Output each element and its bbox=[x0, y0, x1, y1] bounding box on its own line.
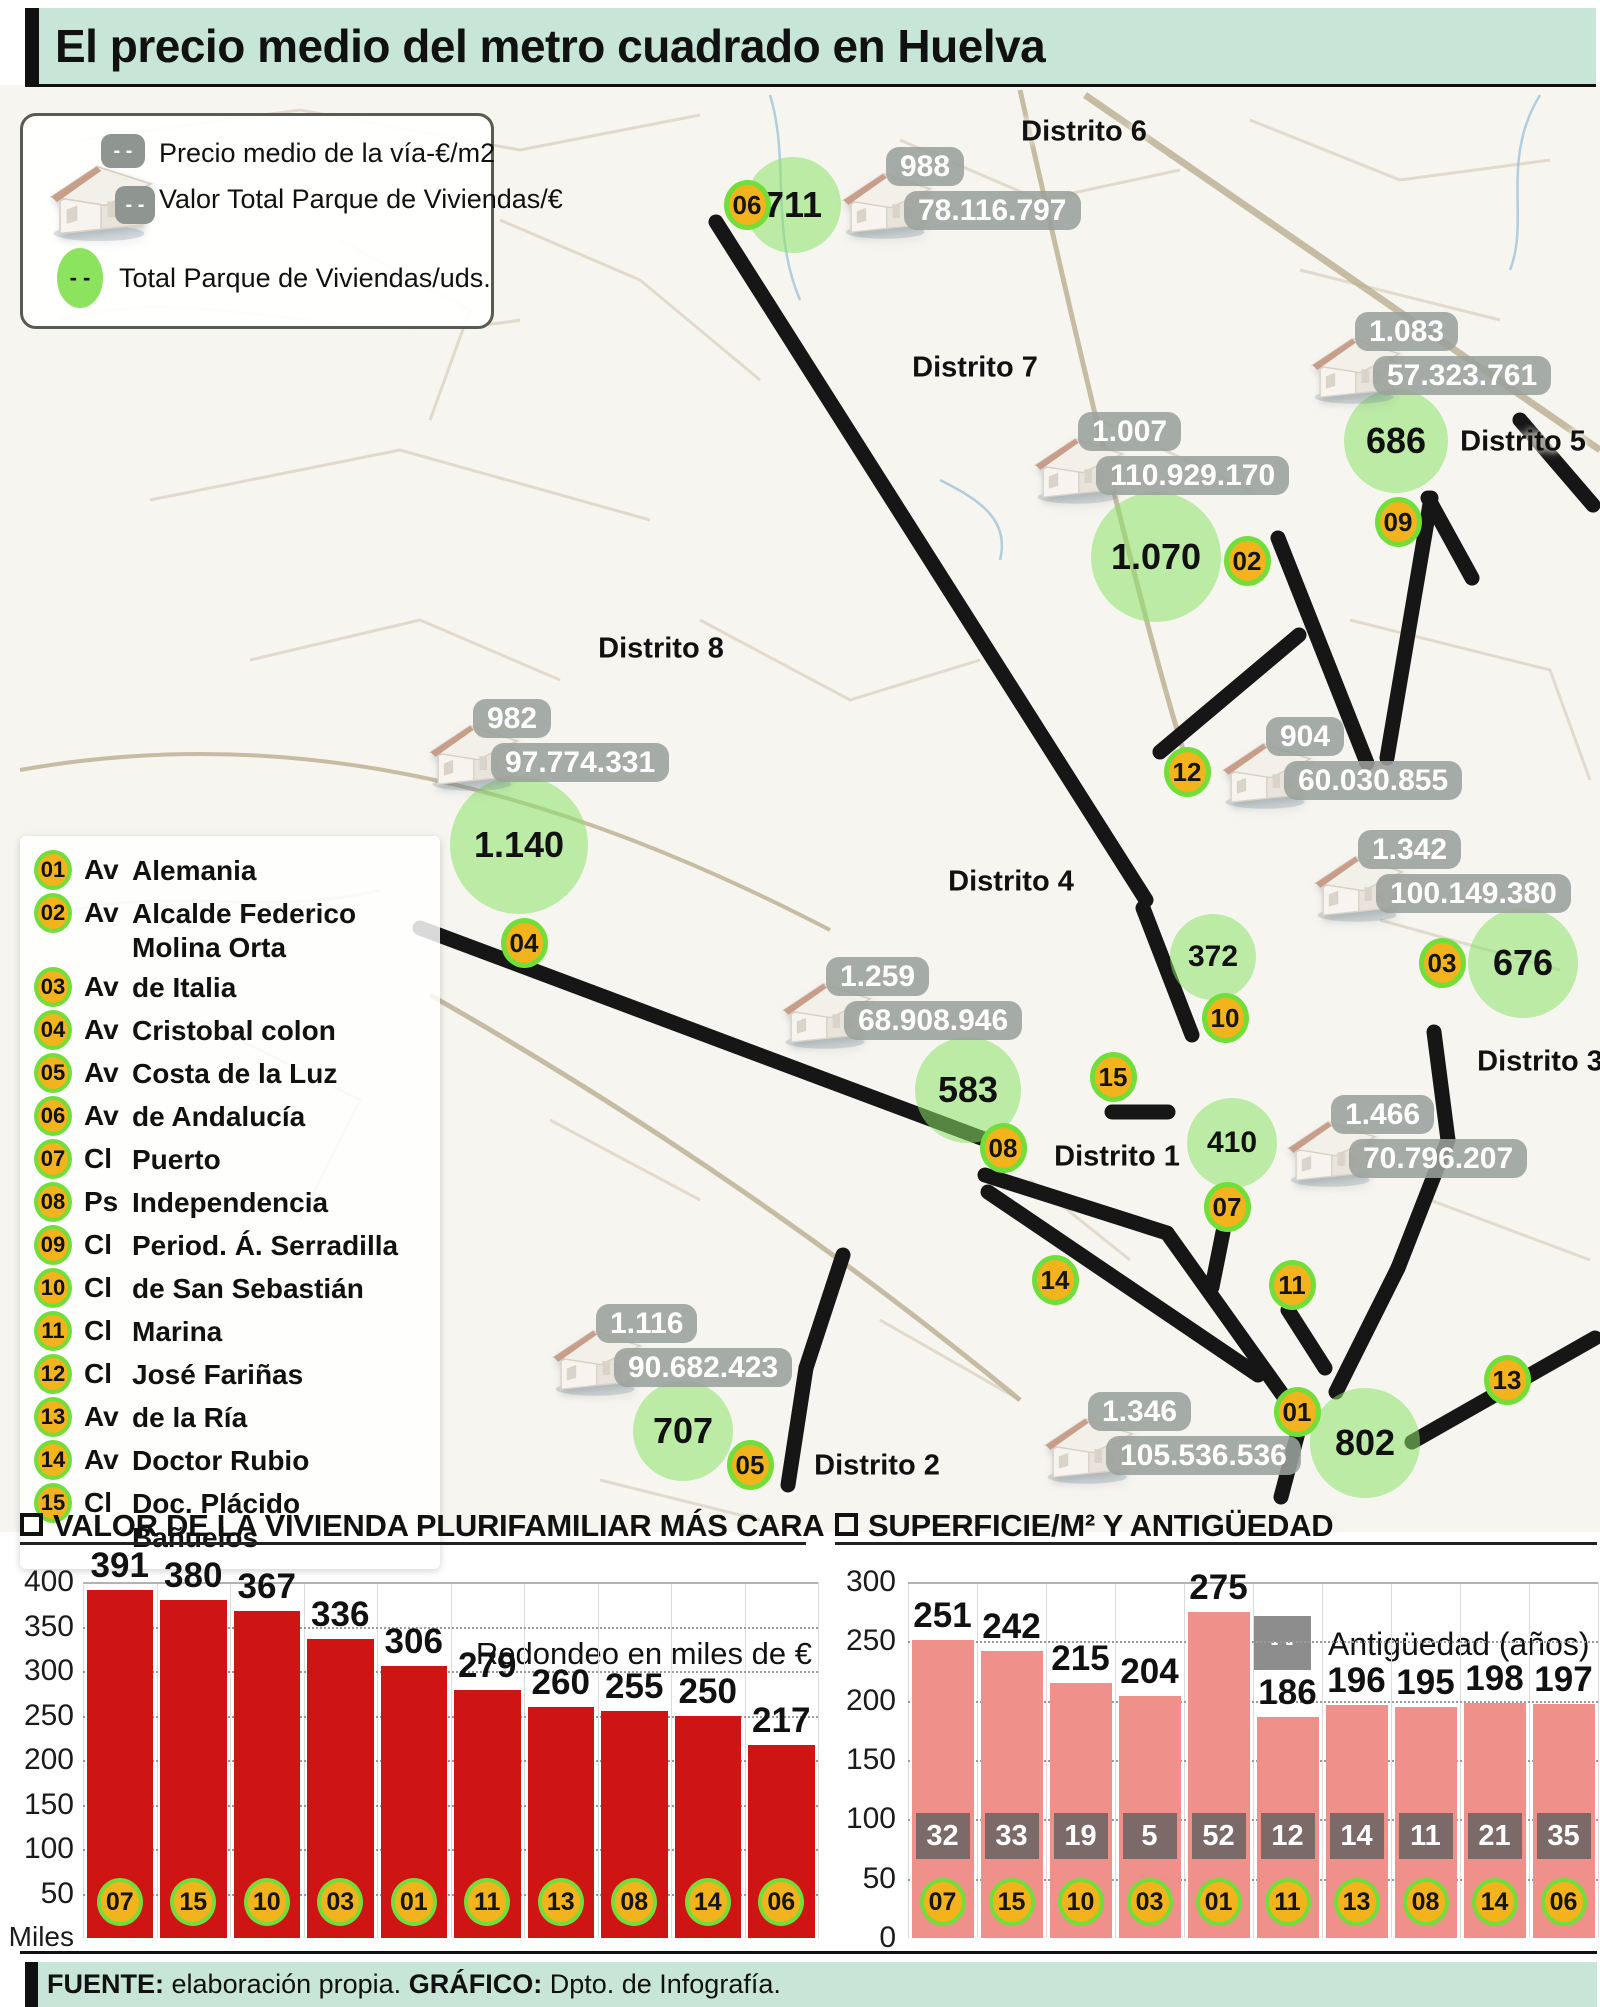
bar-value-label: 391 bbox=[83, 1546, 157, 1586]
age-value-badge: 35 bbox=[1537, 1813, 1591, 1859]
infographic-page: 7116861.0701.14037267658341070780298878.… bbox=[0, 0, 1600, 2007]
age-value-badge: 33 bbox=[985, 1813, 1039, 1859]
x-category-badge: 03 bbox=[1127, 1878, 1173, 1926]
bar-value-label: 250 bbox=[671, 1672, 745, 1712]
age-value-badge: 5 bbox=[1123, 1813, 1177, 1859]
y-axis-tick: 0 bbox=[826, 1921, 896, 1955]
bar-value-label: 279 bbox=[451, 1646, 525, 1686]
bar-value-label: 336 bbox=[304, 1595, 378, 1635]
age-value-badge: 11 bbox=[1399, 1813, 1453, 1859]
x-category-badge: 07 bbox=[97, 1878, 143, 1926]
bar-value-label: 367 bbox=[230, 1567, 304, 1607]
y-axis-tick: 100 bbox=[8, 1832, 74, 1866]
bar-value-label: 197 bbox=[1529, 1660, 1598, 1700]
bar-value-label: 215 bbox=[1046, 1639, 1115, 1679]
x-category-badge: 15 bbox=[170, 1878, 216, 1926]
x-category-badge: 14 bbox=[1472, 1878, 1518, 1926]
y-axis-tick: 150 bbox=[8, 1788, 74, 1822]
x-category-badge: 01 bbox=[1196, 1878, 1242, 1926]
age-value-badge: 14 bbox=[1330, 1813, 1384, 1859]
chart1-rule bbox=[20, 1542, 806, 1545]
bar-value-label: 255 bbox=[598, 1667, 672, 1707]
x-category-badge: 14 bbox=[685, 1878, 731, 1926]
bar-value-label: 198 bbox=[1460, 1659, 1529, 1699]
x-category-badge: 06 bbox=[758, 1878, 804, 1926]
bar-value-label: 186 bbox=[1253, 1673, 1322, 1713]
y-axis-tick: 50 bbox=[826, 1862, 896, 1896]
age-value-badge: 52 bbox=[1192, 1813, 1246, 1859]
y-axis-tick: 300 bbox=[826, 1565, 896, 1599]
age-value-badge: 19 bbox=[1054, 1813, 1108, 1859]
chart-column-separator bbox=[1598, 1582, 1599, 1938]
chart1-header: VALOR DE LA VIVIENDA PLURIFAMILIAR MÁS C… bbox=[20, 1508, 824, 1544]
x-category-badge: 10 bbox=[1058, 1878, 1104, 1926]
x-category-badge: 01 bbox=[391, 1878, 437, 1926]
y-axis-tick: 250 bbox=[826, 1624, 896, 1658]
x-category-badge: 13 bbox=[1334, 1878, 1380, 1926]
bar-value-label: 196 bbox=[1322, 1661, 1391, 1701]
x-category-badge: 03 bbox=[317, 1878, 363, 1926]
y-axis-tick: 400 bbox=[8, 1565, 74, 1599]
x-category-badge: 08 bbox=[1403, 1878, 1449, 1926]
square-bullet-icon bbox=[835, 1513, 858, 1536]
chart-column-separator bbox=[818, 1582, 819, 1938]
x-category-badge: 11 bbox=[1265, 1878, 1311, 1926]
y-axis-tick: 100 bbox=[826, 1802, 896, 1836]
bar-value-label: 306 bbox=[377, 1622, 451, 1662]
x-category-badge: 13 bbox=[538, 1878, 584, 1926]
y-axis-tick: 250 bbox=[8, 1699, 74, 1733]
x-category-badge: 06 bbox=[1541, 1878, 1587, 1926]
y-axis-tick: 300 bbox=[8, 1654, 74, 1688]
bar-value-label: 204 bbox=[1115, 1652, 1184, 1692]
age-legend-label: Antigüedad (años) bbox=[1328, 1626, 1590, 1663]
bar-value-label: 217 bbox=[745, 1701, 819, 1741]
bar-value-label: 242 bbox=[977, 1607, 1046, 1647]
x-category-badge: 15 bbox=[989, 1878, 1035, 1926]
y-axis-tick: 150 bbox=[826, 1743, 896, 1777]
x-category-badge: 11 bbox=[464, 1878, 510, 1926]
square-bullet-icon bbox=[20, 1513, 43, 1536]
bar-value-label: 195 bbox=[1391, 1663, 1460, 1703]
y-axis-tick: 200 bbox=[826, 1684, 896, 1718]
y-axis-tick: 350 bbox=[8, 1610, 74, 1644]
age-value-badge: 32 bbox=[916, 1813, 970, 1859]
chart2-header: SUPERFICIE/M² Y ANTIGÜEDAD bbox=[835, 1508, 1333, 1544]
age-value-badge: 21 bbox=[1468, 1813, 1522, 1859]
bar-value-label: 275 bbox=[1184, 1568, 1253, 1608]
y-axis-unit: Miles bbox=[8, 1921, 74, 1953]
x-category-badge: 07 bbox=[920, 1878, 966, 1926]
y-axis-tick: 50 bbox=[8, 1877, 74, 1911]
x-category-badge: 08 bbox=[611, 1878, 657, 1926]
bar-value-label: 251 bbox=[908, 1596, 977, 1636]
age-value-badge: 12 bbox=[1261, 1813, 1315, 1859]
chart-gridline bbox=[908, 1582, 1598, 1584]
bar-value-label: 380 bbox=[157, 1556, 231, 1596]
y-axis-tick: 200 bbox=[8, 1743, 74, 1777]
chart2-rule bbox=[835, 1542, 1597, 1545]
x-category-badge: 10 bbox=[244, 1878, 290, 1926]
charts-area: Redondeo en miles de € - - Antigüedad (a… bbox=[0, 0, 1600, 2007]
bar-value-label: 260 bbox=[524, 1663, 598, 1703]
